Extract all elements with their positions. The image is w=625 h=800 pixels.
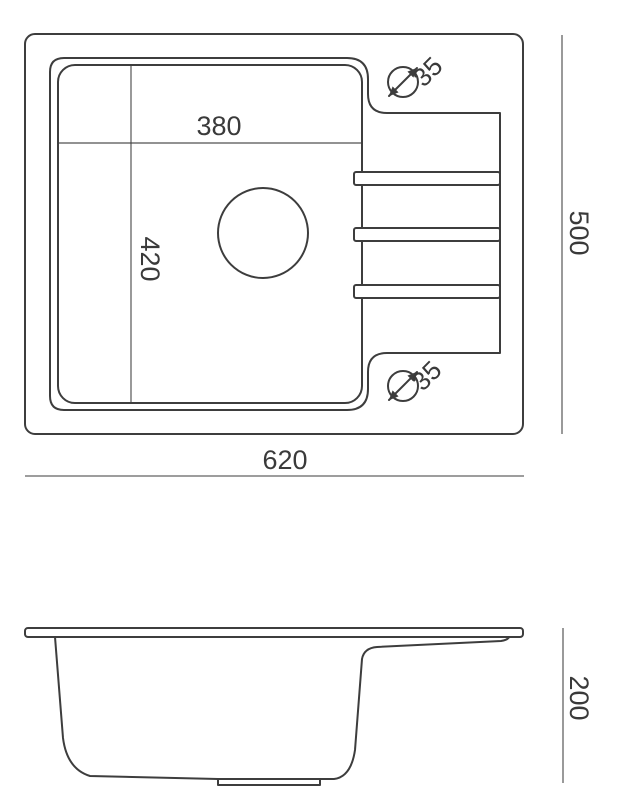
technical-drawing-page: 35 35 380 420 500 620 200 [0, 0, 625, 800]
bowl-profile [55, 637, 509, 779]
overall-height-label: 200 [564, 675, 594, 720]
drainer-groove [354, 172, 500, 185]
tap-hole-top: 35 [388, 51, 448, 97]
drainer-groove [354, 285, 500, 298]
tap-hole-bottom: 35 [388, 355, 447, 401]
side-view [25, 628, 523, 785]
drain-hole [218, 188, 308, 278]
top-view: 35 35 380 420 [25, 34, 523, 434]
drainer-groove [354, 228, 500, 241]
dimension-overall-width: 620 [25, 445, 524, 476]
tap-hole-bottom-diameter-label: 35 [406, 355, 448, 397]
overall-width-label: 620 [262, 445, 307, 475]
dimension-overall-height: 200 [563, 628, 594, 783]
drain-fitting [218, 779, 320, 785]
drainer-grooves [354, 172, 500, 298]
overall-depth-label: 500 [564, 210, 594, 255]
rim-profile [25, 628, 523, 637]
tap-hole-top-diameter-label: 35 [407, 51, 449, 93]
sink-technical-drawing: 35 35 380 420 500 620 200 [0, 0, 625, 800]
bowl-depth-label: 420 [135, 236, 165, 281]
dimension-overall-depth: 500 [562, 35, 594, 434]
bowl-width-label: 380 [196, 111, 241, 141]
